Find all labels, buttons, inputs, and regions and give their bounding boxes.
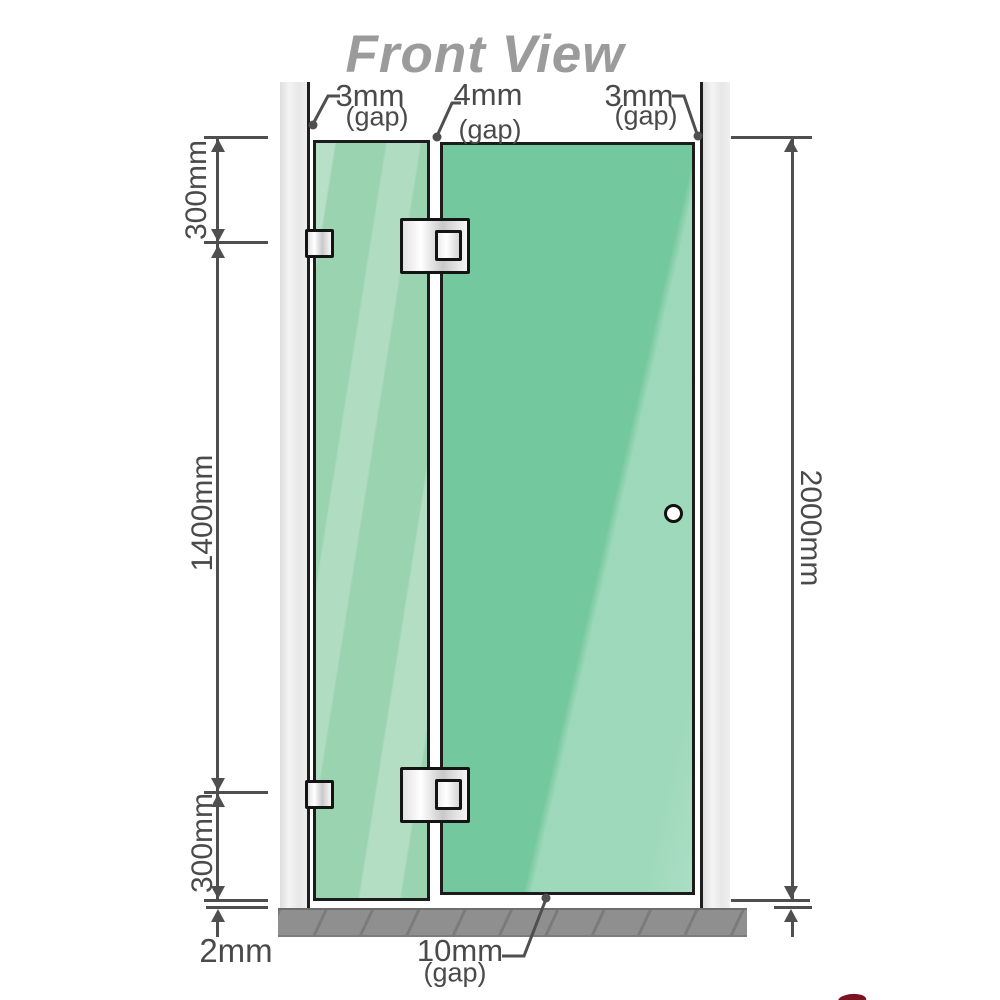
arrow-up-icon <box>784 139 798 152</box>
dim-label-300-bot: 300mm <box>186 793 220 893</box>
arrow-up-icon <box>211 909 225 922</box>
logo-sliver <box>838 993 866 1000</box>
dim-tick <box>731 136 812 139</box>
gap-label-left-suffix: (gap) <box>345 102 408 133</box>
dim-line-300-top <box>216 139 219 242</box>
dim-label-2000: 2000mm <box>793 470 827 587</box>
gap-label-middle-value: 4mm <box>454 77 523 113</box>
arrow-down-icon <box>784 886 798 899</box>
door-handle-knob <box>664 504 683 523</box>
gap-label-middle-suffix: (gap) <box>458 115 521 146</box>
dim-line-floor-gap-right <box>791 920 794 937</box>
hinge-top-plate <box>435 230 462 261</box>
dim-label-300-top: 300mm <box>180 140 214 240</box>
dim-label-1400: 1400mm <box>186 455 220 572</box>
hinge-bottom-plate <box>435 779 462 810</box>
arrow-up-icon <box>784 909 798 922</box>
floor-hatched-bar <box>278 908 747 937</box>
wall-channel-right <box>700 82 730 908</box>
dim-label-2mm: 2mm <box>199 932 272 970</box>
page-title: Front View <box>290 24 680 85</box>
glass-door-panel <box>440 142 695 895</box>
arrow-up-icon <box>211 245 225 258</box>
leader-dot-icon <box>433 133 442 142</box>
gap-label-bottom-suffix: (gap) <box>423 958 486 989</box>
dim-tick <box>204 899 268 902</box>
dim-tick <box>731 899 810 902</box>
wall-bracket-top <box>305 229 334 258</box>
gap-label-right-suffix: (gap) <box>614 101 677 132</box>
arrow-down-icon <box>211 778 225 791</box>
front-view-diagram: Front View 300mm 1400mm 300mm 2mm 2000mm <box>0 0 1000 1000</box>
wall-bracket-bottom <box>305 780 334 809</box>
